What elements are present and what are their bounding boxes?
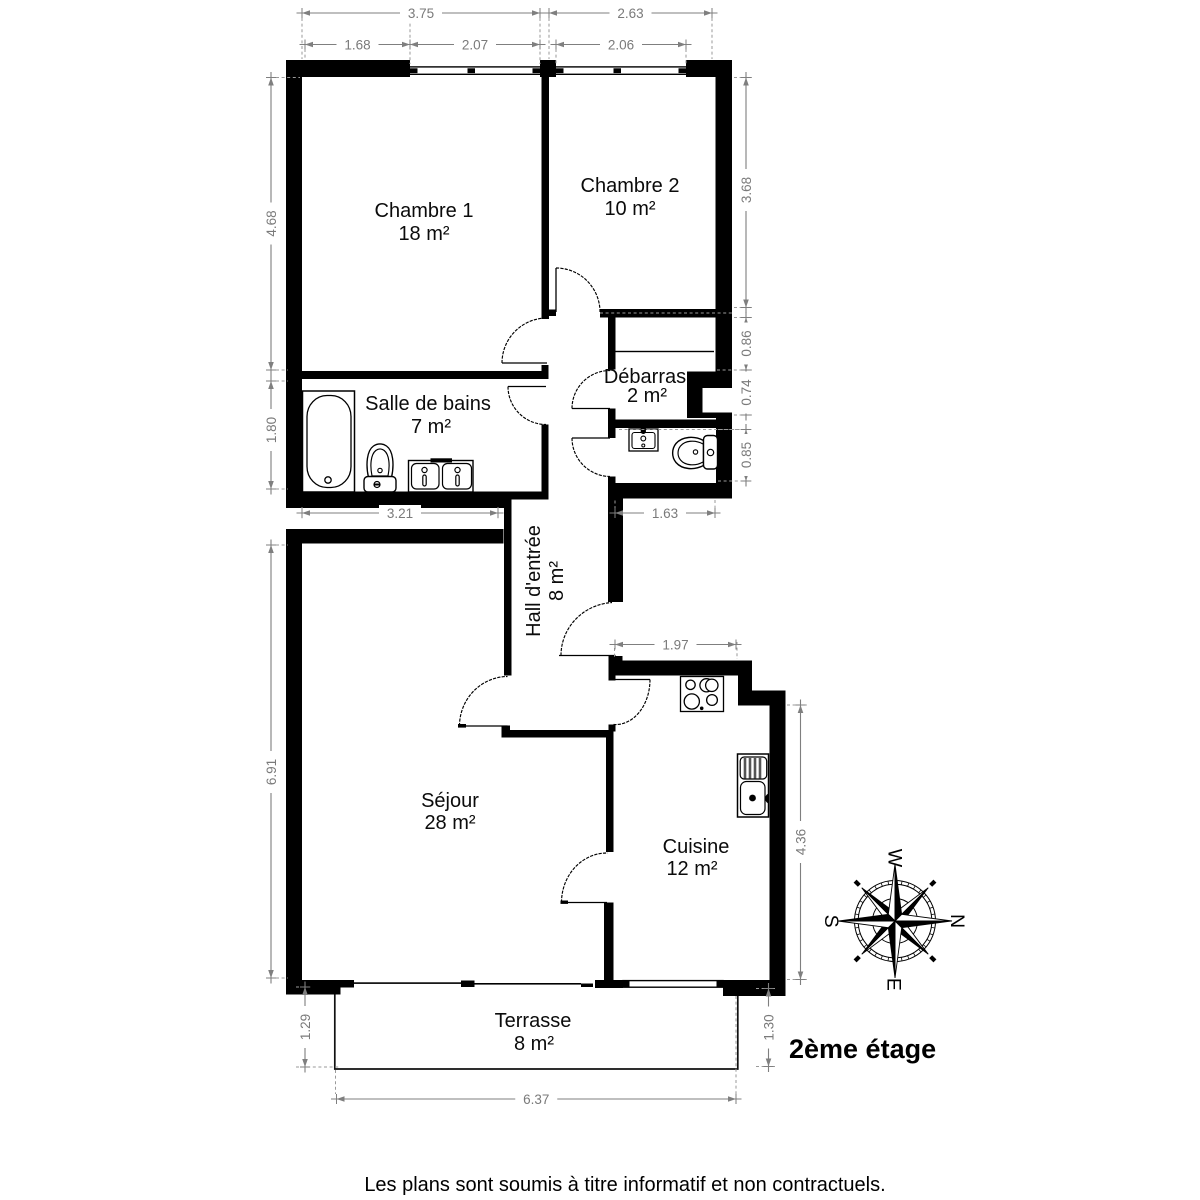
svg-text:Chambre 1: Chambre 1 [375,200,474,222]
svg-text:Chambre 2: Chambre 2 [581,175,680,197]
svg-text:6.37: 6.37 [523,1092,549,1107]
svg-text:7 m²: 7 m² [411,416,451,438]
svg-text:1.30: 1.30 [761,1014,776,1040]
svg-text:2.06: 2.06 [608,37,634,52]
svg-text:6.91: 6.91 [264,759,279,785]
svg-text:3.21: 3.21 [387,506,413,521]
svg-text:2.07: 2.07 [462,37,488,52]
svg-text:Salle de bains: Salle de bains [365,393,491,415]
svg-text:2.63: 2.63 [617,6,643,21]
svg-text:28 m²: 28 m² [424,812,475,834]
svg-text:2 m²: 2 m² [627,385,667,407]
svg-text:W: W [883,849,905,868]
svg-text:Séjour: Séjour [421,790,479,812]
svg-text:2ème étage: 2ème étage [789,1034,936,1064]
svg-text:1.97: 1.97 [662,637,688,652]
svg-text:0.74: 0.74 [739,379,754,406]
svg-text:4.68: 4.68 [264,210,279,236]
svg-text:0.86: 0.86 [739,330,754,356]
svg-text:Hall d'entrée: Hall d'entrée [523,525,545,637]
svg-text:12 m²: 12 m² [666,858,717,880]
svg-text:4.36: 4.36 [793,829,808,855]
svg-text:3.75: 3.75 [408,6,434,21]
svg-text:1.80: 1.80 [264,417,279,443]
svg-text:10 m²: 10 m² [604,198,655,220]
svg-text:N: N [946,914,968,928]
svg-text:3.68: 3.68 [739,177,754,203]
svg-text:S: S [820,915,842,928]
svg-text:Terrasse: Terrasse [495,1010,572,1032]
svg-text:E: E [883,978,905,991]
svg-text:8 m²: 8 m² [514,1033,554,1055]
svg-text:Cuisine: Cuisine [663,836,730,858]
svg-text:Les plans sont soumis à titre: Les plans sont soumis à titre informatif… [364,1174,885,1196]
svg-text:18 m²: 18 m² [398,223,449,245]
svg-text:1.29: 1.29 [298,1014,313,1040]
svg-text:8 m²: 8 m² [546,561,568,601]
svg-text:1.68: 1.68 [344,37,370,52]
svg-text:1.63: 1.63 [652,506,678,521]
svg-text:0.85: 0.85 [739,442,754,468]
